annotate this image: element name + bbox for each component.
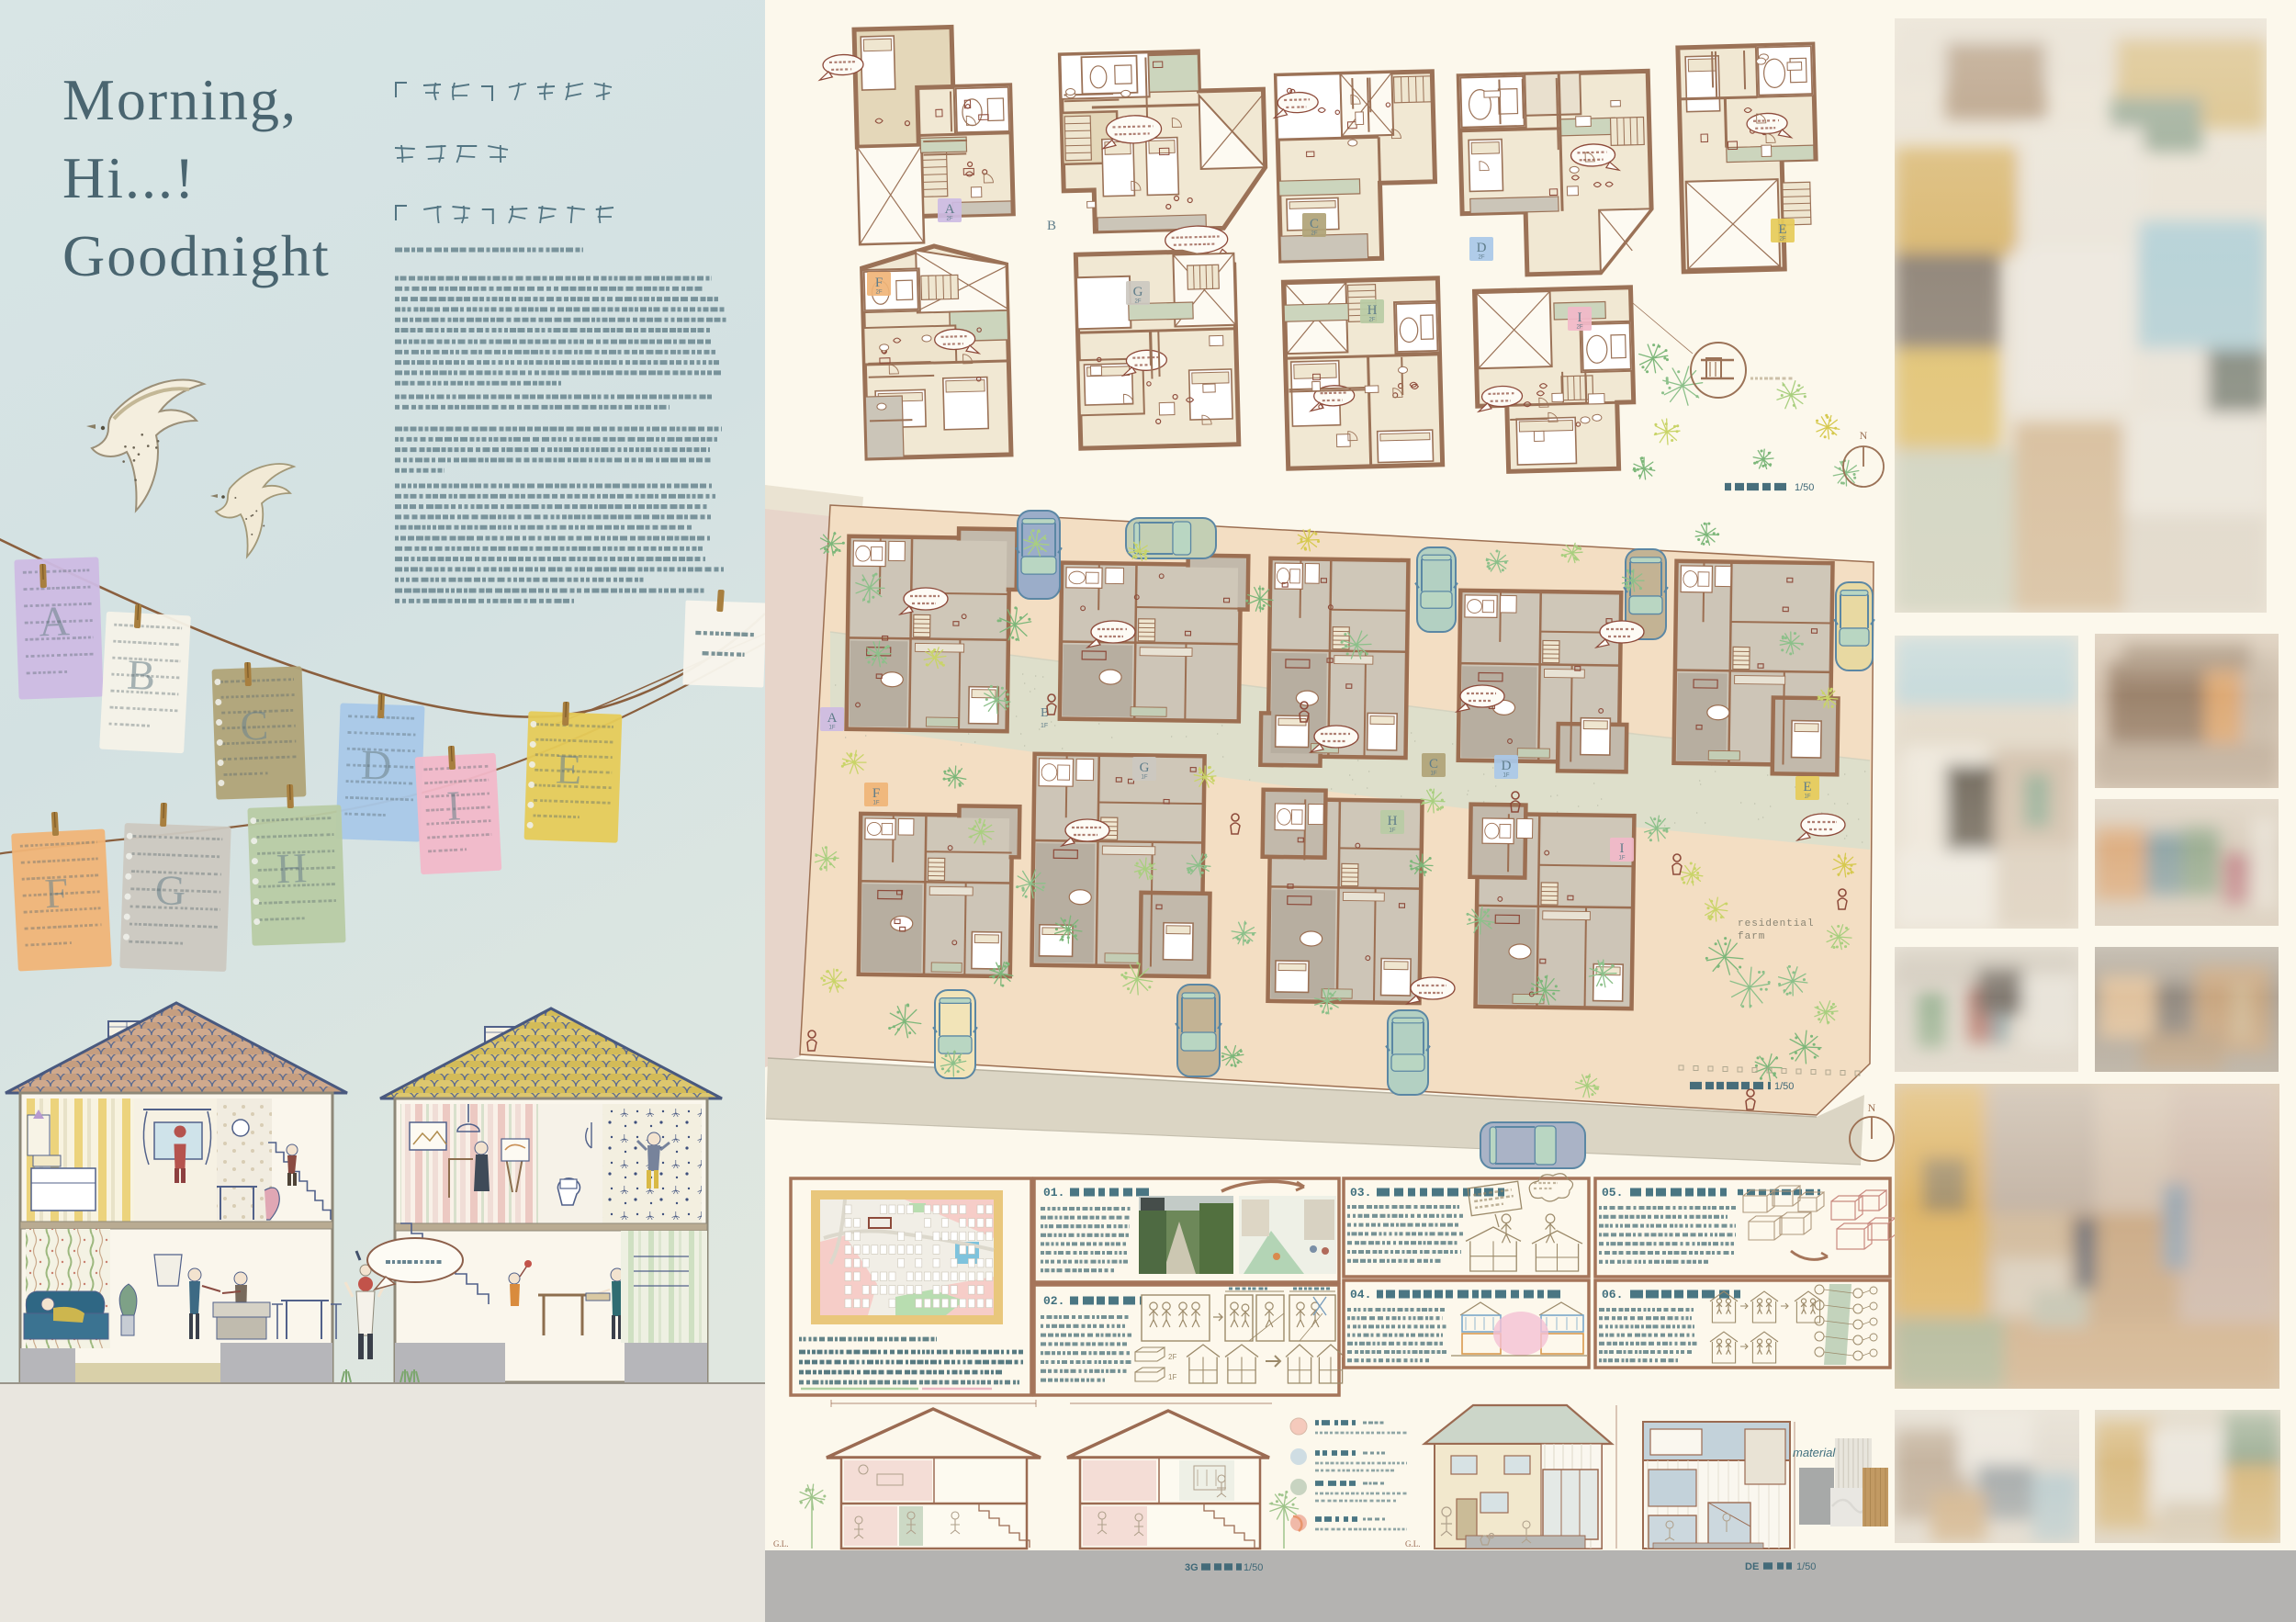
svg-text:E: E (1778, 222, 1786, 237)
svg-text:A: A (827, 711, 838, 726)
svg-text:2F: 2F (1478, 255, 1484, 261)
svg-text:D: D (1477, 241, 1487, 255)
svg-text:2F: 2F (1779, 237, 1785, 242)
svg-text:G: G (1140, 760, 1150, 775)
svg-text:1F: 1F (1804, 794, 1810, 800)
svg-text:H: H (1367, 303, 1378, 318)
svg-text:2F: 2F (875, 290, 882, 296)
svg-text:F: F (872, 786, 880, 801)
svg-text:1F: 1F (1503, 773, 1509, 779)
svg-text:2F: 2F (946, 217, 952, 222)
svg-text:H: H (1388, 814, 1398, 828)
svg-text:1F: 1F (828, 726, 835, 731)
svg-text:farm: farm (1738, 931, 1765, 942)
svg-text:G.L.: G.L. (773, 1539, 789, 1549)
svg-text:1F: 1F (1041, 723, 1048, 729)
svg-text:04.: 04. (1350, 1288, 1371, 1301)
svg-text:Hi...!: Hi...! (62, 145, 196, 210)
svg-text:1/50: 1/50 (1796, 1561, 1816, 1572)
svg-text:1F: 1F (1168, 1373, 1176, 1381)
svg-text:G: G (1133, 285, 1143, 299)
svg-text:I: I (1620, 841, 1625, 856)
svg-text:1F: 1F (1618, 856, 1625, 862)
svg-text:1F: 1F (872, 801, 879, 806)
svg-text:1F: 1F (1389, 828, 1395, 834)
svg-text:2F: 2F (1168, 1353, 1176, 1361)
svg-text:2F: 2F (1368, 318, 1375, 323)
svg-text:C: C (1310, 217, 1319, 231)
svg-text:2F: 2F (1576, 325, 1582, 331)
svg-text:N: N (1860, 429, 1868, 442)
svg-text:Goodnight: Goodnight (62, 223, 331, 288)
svg-text:Morning,: Morning, (62, 67, 298, 132)
svg-text:material: material (1793, 1446, 1836, 1459)
svg-text:05.: 05. (1602, 1186, 1623, 1200)
svg-text:D: D (1502, 759, 1512, 773)
svg-text:I: I (1578, 310, 1582, 325)
svg-text:B: B (1047, 219, 1056, 233)
svg-text:01.: 01. (1043, 1186, 1064, 1200)
svg-text:residential: residential (1738, 918, 1815, 929)
svg-text:02.: 02. (1043, 1294, 1064, 1308)
svg-text:2F: 2F (1134, 299, 1141, 305)
svg-text:N: N (1868, 1101, 1876, 1114)
svg-text:G.L.: G.L. (1405, 1539, 1421, 1549)
svg-text:C: C (1429, 757, 1438, 772)
svg-text:F: F (875, 276, 883, 290)
svg-text:1F: 1F (1430, 772, 1436, 777)
svg-text:1/50: 1/50 (1795, 482, 1814, 493)
svg-text:DE: DE (1745, 1561, 1759, 1572)
svg-text:06.: 06. (1602, 1288, 1623, 1301)
svg-text:E: E (1803, 780, 1811, 794)
svg-text:A: A (945, 202, 955, 217)
svg-text:1/50: 1/50 (1244, 1562, 1263, 1573)
svg-text:1/50: 1/50 (1774, 1081, 1794, 1092)
svg-text:2F: 2F (1311, 231, 1317, 237)
svg-text:03.: 03. (1350, 1186, 1371, 1200)
svg-text:3G: 3G (1185, 1562, 1199, 1573)
svg-text:1F: 1F (1141, 775, 1147, 781)
